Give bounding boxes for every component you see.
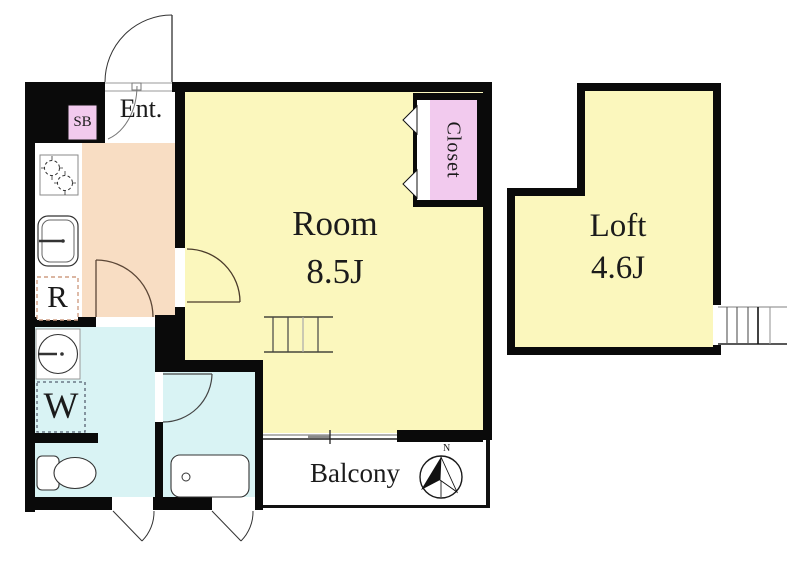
loft-wall-upper-left [577,83,585,196]
stove-icon [40,155,78,195]
exterior-door-opening-right [212,497,255,510]
exterior-door-opening-left [112,497,153,510]
wall-room-bottom-right [397,430,483,442]
closet-interior [430,100,477,200]
floorplan-drawing [0,0,800,569]
wall-washroom-stub [25,433,98,443]
wall-top [172,82,492,92]
sink-faucet-dot [61,239,65,243]
loft-wall-top [577,83,721,91]
exterior-door-left [113,511,154,541]
window-panel-overlap [308,436,330,439]
shoe-box [68,105,97,140]
loft-wall-step [507,188,585,196]
sink-icon [38,216,78,266]
stove-body [40,155,78,195]
closet-unit [403,93,483,207]
washbasin-icon [36,329,80,379]
loft-wall-right-lower [713,345,721,355]
kitchen-door-opening [96,317,155,327]
room-door-opening [177,249,185,307]
loft-wall-right-upper [713,83,721,305]
exterior-door-right [212,511,253,541]
loft-wall-bottom [507,347,721,355]
entrance-door [105,15,172,82]
loft-area-lower [515,196,713,347]
loft-ladder-rungs [727,307,748,344]
compass-icon [420,456,462,498]
wall-kitchen-room-upper [175,92,185,248]
floorplan: Ent. SB Room 8.5J Loft 4.6J Closet R W B… [0,0,800,569]
bathtub-icon [171,455,249,497]
bathtub-body [171,455,249,497]
entrance-door-arc [105,15,172,82]
balcony-right-border [486,440,490,507]
exterior-door-left-arc [142,511,154,541]
exterior-door-left-leaf [113,511,142,541]
toilet-bowl [54,458,96,489]
refrigerator-space-box [37,277,78,320]
toilet-icon [37,456,96,490]
exterior-door-right-leaf [212,511,241,541]
room-area-lower [263,360,483,433]
wall-bathroom-top [155,360,263,372]
closet-door-track [417,100,430,200]
loft-area-upper [585,91,713,196]
wall-left [25,82,35,512]
wall-right [483,82,492,440]
loft-wall-lower-left [507,188,515,355]
balcony-bottom-border [263,505,490,508]
bathroom-door-opening [155,372,163,422]
washbasin-faucet-dot [60,352,64,356]
wall-bathroom-right [255,362,263,510]
area-fills [35,91,713,497]
exterior-door-right-arc [241,511,253,541]
wall-junction [155,315,185,365]
loft-ladder-icon [718,307,787,344]
